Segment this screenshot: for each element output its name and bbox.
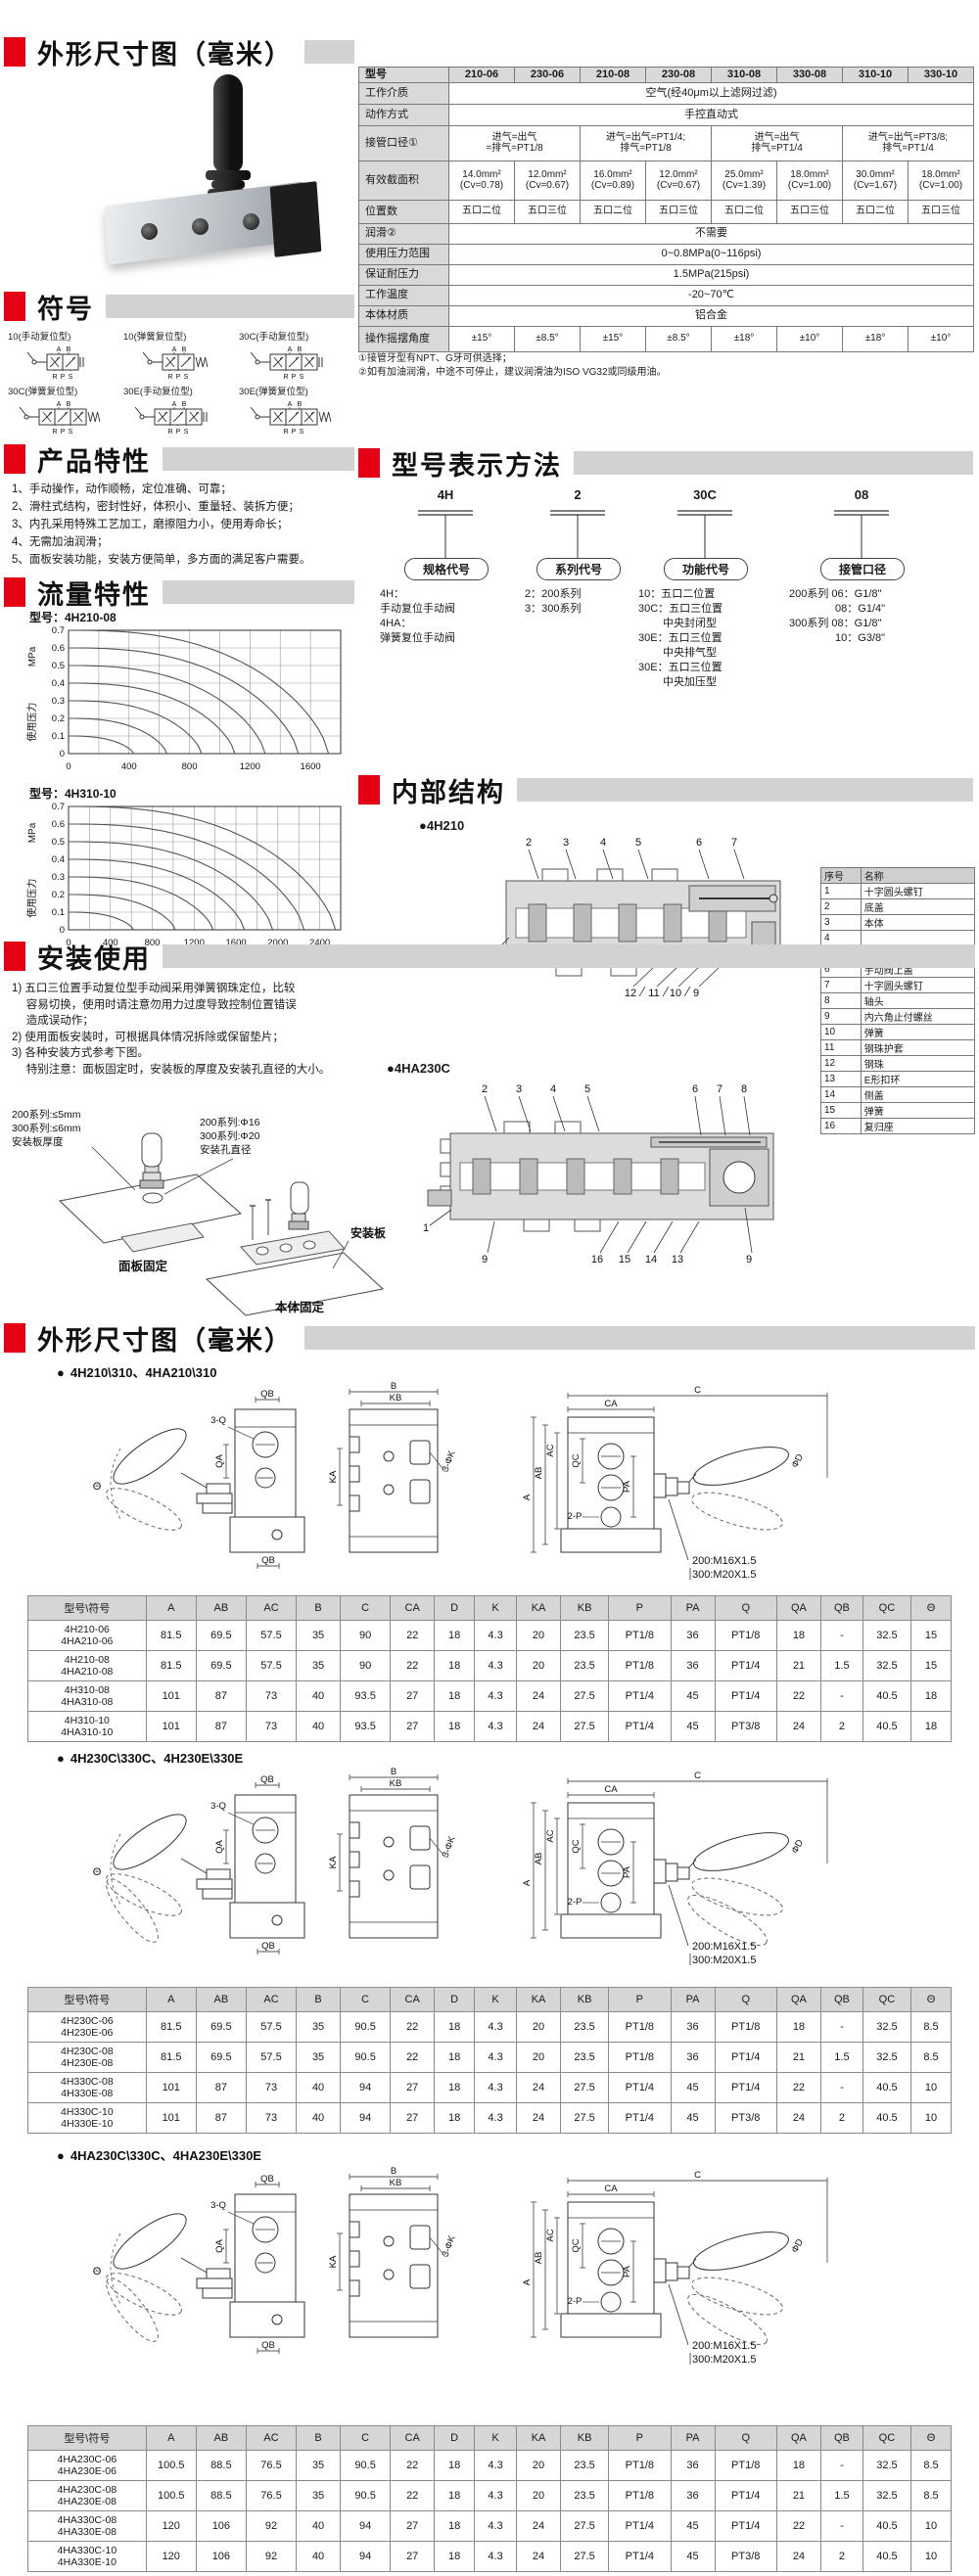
spec-value-cell: 手控直动式 bbox=[449, 104, 974, 125]
svg-text:P: P bbox=[292, 429, 297, 436]
dim-value-cell: 94 bbox=[341, 2073, 391, 2103]
svg-text:QA: QA bbox=[214, 1453, 225, 1467]
dim-value-cell: 81.5 bbox=[146, 2012, 196, 2043]
section-title-features: 产品特性 bbox=[37, 440, 151, 479]
dim-value-cell: 27 bbox=[391, 1681, 435, 1712]
dim-value-cell: 4.3 bbox=[475, 1681, 517, 1712]
dim-value-cell: 4.3 bbox=[475, 2073, 517, 2103]
dim-value-cell: 40.5 bbox=[862, 2511, 910, 2542]
parts-header-cell: 名称 bbox=[861, 868, 974, 884]
dim-value-cell: 20 bbox=[517, 2012, 561, 2043]
dim-value-cell: 94 bbox=[341, 2542, 391, 2572]
dim-value-cell: - bbox=[820, 1681, 862, 1712]
dim-value-cell: 18 bbox=[435, 1681, 475, 1712]
dim-value-cell: 18 bbox=[910, 1681, 951, 1712]
svg-text:7: 7 bbox=[731, 837, 737, 849]
dim-value-cell: 45 bbox=[671, 1712, 715, 1742]
dim-value-cell: 36 bbox=[671, 2012, 715, 2043]
dim-header-cell: QB bbox=[820, 1596, 862, 1621]
dim-value-cell: 18 bbox=[435, 2481, 475, 2511]
dim-value-cell: 4.3 bbox=[475, 2043, 517, 2073]
section-title-outline-bottom: 外形尺寸图（毫米） bbox=[37, 1319, 293, 1357]
dim-value-cell: 24 bbox=[776, 1712, 820, 1742]
section-header-internal: 内部结构 bbox=[358, 773, 973, 806]
model-code-options: 2：200系列 3：300系列 bbox=[525, 587, 581, 617]
svg-text:CA: CA bbox=[604, 1784, 618, 1795]
svg-text:B: B bbox=[391, 2166, 396, 2177]
svg-text:ΦD: ΦD bbox=[790, 1838, 807, 1856]
cross-section-4h210: 23456711211109 bbox=[482, 832, 819, 1000]
dimension-table: 型号\符号AABACBCCADKKAKBPPAQQAQBQCΘ4HA230C-0… bbox=[27, 2425, 952, 2572]
svg-text:3: 3 bbox=[516, 1083, 522, 1095]
dim-header-cell: 型号\符号 bbox=[28, 1596, 147, 1621]
svg-text:A: A bbox=[57, 346, 62, 353]
dimension-drawing-3: ΘQB3-QQAQBBKBKA3-ΦKAABACQC2-PPACCAΦD200:… bbox=[34, 2165, 940, 2370]
spec-value-cell: 五口三位 bbox=[909, 200, 974, 223]
dim-value-cell: 10 bbox=[910, 2103, 951, 2134]
svg-text:400: 400 bbox=[121, 761, 137, 772]
dim-value-cell: 27.5 bbox=[561, 2511, 609, 2542]
dim-value-cell: PT1/4 bbox=[715, 2043, 776, 2073]
spec-value-cell: 五口二位 bbox=[712, 200, 777, 223]
dim-value-cell: 120 bbox=[146, 2542, 196, 2572]
section-marker bbox=[4, 942, 25, 971]
model-code-options: 4H： 手动复位手动阀 4HA： 弹簧复位手动阀 bbox=[380, 587, 455, 646]
spec-row-label: 接管口径① bbox=[359, 125, 449, 161]
dim-value-cell: 93.5 bbox=[341, 1681, 391, 1712]
spec-row-label: 工作介质 bbox=[359, 82, 449, 104]
svg-text:300:M20X1.5: 300:M20X1.5 bbox=[692, 1955, 756, 1966]
spec-row: 有效截面积14.0mm²(Cv=0.78)12.0mm²(Cv=0.67)16.… bbox=[359, 161, 974, 200]
svg-text:PA: PA bbox=[622, 2265, 632, 2277]
dim-header-cell: CA bbox=[391, 1596, 435, 1621]
dim-value-cell: 4.3 bbox=[475, 1712, 517, 1742]
svg-text:2-P: 2-P bbox=[568, 2296, 583, 2307]
dim-value-cell: 35 bbox=[297, 2481, 341, 2511]
svg-text:0.7: 0.7 bbox=[52, 625, 65, 636]
dim-value-cell: 18 bbox=[435, 1651, 475, 1681]
svg-text:4: 4 bbox=[550, 1083, 556, 1095]
dim-value-cell: 2 bbox=[820, 2542, 862, 2572]
dim-value-cell: 81.5 bbox=[146, 1621, 196, 1651]
dim-value-cell: - bbox=[820, 2012, 862, 2043]
dim-header-cell: QC bbox=[862, 1988, 910, 2012]
dim-value-cell: 18 bbox=[435, 2103, 475, 2134]
flow-curve bbox=[69, 666, 265, 754]
symbol-label: 30E(手动复位型) bbox=[123, 384, 239, 397]
spec-model-cell: 330-10 bbox=[909, 68, 974, 83]
dim-value-cell: 69.5 bbox=[196, 1621, 246, 1651]
flow-curve bbox=[69, 912, 133, 930]
svg-text:0.5: 0.5 bbox=[52, 837, 65, 848]
parts-header-row: 序号名称 bbox=[821, 868, 975, 884]
spec-value-cell: 五口三位 bbox=[646, 200, 712, 223]
dim-header-cell: P bbox=[609, 1596, 671, 1621]
dim-value-cell: 8.5 bbox=[910, 2481, 951, 2511]
dim-value-cell: 22 bbox=[391, 2481, 435, 2511]
dimension-table: 型号\符号AABACBCCADKKAKBPPAQQAQBQCΘ4H210-064… bbox=[27, 1595, 952, 1742]
spec-row-label: 有效截面积 bbox=[359, 161, 449, 200]
dim-header-cell: AC bbox=[246, 1596, 296, 1621]
flow-curve bbox=[69, 877, 213, 930]
dim-value-cell: 20 bbox=[517, 2451, 561, 2481]
spec-row-label: 操作摇摆角度 bbox=[359, 326, 449, 351]
svg-text:0.4: 0.4 bbox=[52, 854, 65, 865]
dim-value-cell: 35 bbox=[297, 1621, 341, 1651]
svg-text:Θ: Θ bbox=[93, 2266, 102, 2277]
parts-row: 3本体 bbox=[821, 915, 975, 931]
dim-header-cell: QB bbox=[820, 2426, 862, 2451]
dim-value-cell: 22 bbox=[391, 2012, 435, 2043]
model-code-segment: 2 bbox=[548, 487, 607, 502]
feature-item: 1、手动操作，动作顺畅，定位准确、可靠； bbox=[12, 482, 352, 497]
dim-value-cell: 87 bbox=[196, 1712, 246, 1742]
svg-text:0.4: 0.4 bbox=[52, 678, 65, 689]
dim-value-cell: 94 bbox=[341, 2511, 391, 2542]
svg-text:CA: CA bbox=[604, 2184, 618, 2194]
part-no-cell: 2 bbox=[821, 899, 862, 915]
dim-header-cell: C bbox=[341, 1988, 391, 2012]
valve-symbol-icon: ABRPS bbox=[239, 344, 349, 381]
svg-text:A: A bbox=[172, 346, 177, 353]
svg-text:CA: CA bbox=[604, 1399, 618, 1409]
dim-value-cell: 8.5 bbox=[910, 2451, 951, 2481]
subsection1-label: 4H210\310、4HA210\310 bbox=[70, 1365, 217, 1380]
svg-text:C: C bbox=[694, 2170, 701, 2181]
dim-value-cell: 18 bbox=[435, 2511, 475, 2542]
spec-row: 工作介质空气(经40μm以上滤网过滤) bbox=[359, 82, 974, 104]
svg-text:300:M20X1.5: 300:M20X1.5 bbox=[692, 2354, 756, 2366]
svg-text:S: S bbox=[69, 429, 73, 436]
dim-value-cell: 32.5 bbox=[862, 1651, 910, 1681]
dim-header-cell: AB bbox=[196, 1596, 246, 1621]
spec-row: 工作温度-20~70℃ bbox=[359, 285, 974, 305]
part-name-cell: 侧盖 bbox=[861, 1087, 974, 1103]
dim-header-cell: PA bbox=[671, 2426, 715, 2451]
dim-value-cell: 40 bbox=[297, 2542, 341, 2572]
bullet-icon: ● bbox=[57, 1751, 65, 1766]
section-title-bar bbox=[163, 944, 975, 968]
svg-text:A: A bbox=[288, 346, 293, 353]
dim-value-cell: 18 bbox=[435, 1621, 475, 1651]
dim-value-cell: 36 bbox=[671, 2481, 715, 2511]
flow-chart-4h310-10: 0400800120016002000240000.10.20.30.40.50… bbox=[23, 801, 350, 958]
model-code-options: 200系列 06：G1/8" 08：G1/4" 300系列 08：G1/8" 1… bbox=[789, 587, 885, 646]
dim-header-cell: A bbox=[146, 2426, 196, 2451]
svg-text:S: S bbox=[184, 429, 189, 436]
dim-value-cell: 90.5 bbox=[341, 2043, 391, 2073]
dim-header-cell: AC bbox=[246, 2426, 296, 2451]
dim-value-cell: 18 bbox=[776, 2451, 820, 2481]
dim-value-cell: 27 bbox=[391, 2511, 435, 2542]
svg-text:B: B bbox=[391, 1381, 396, 1392]
model-code-segment: 4H bbox=[416, 487, 475, 502]
svg-text:A: A bbox=[522, 1494, 533, 1500]
spec-value-cell: 18.0mm²(Cv=1.00) bbox=[777, 161, 843, 200]
svg-text:B: B bbox=[298, 401, 303, 408]
svg-text:200系列:Φ16: 200系列:Φ16 bbox=[200, 1116, 260, 1128]
mounting-diagram: 200系列:≤5mm300系列:≤6mm安装板厚度200系列:Φ16300系列:… bbox=[6, 1088, 386, 1319]
svg-text:3-ΦK: 3-ΦK bbox=[441, 2233, 458, 2258]
dim-value-cell: 45 bbox=[671, 1681, 715, 1712]
dim-value-cell: 73 bbox=[246, 1712, 296, 1742]
flow-curve bbox=[69, 842, 273, 930]
svg-text:AB: AB bbox=[534, 1853, 544, 1865]
valve-symbol-icon: ABRPS bbox=[123, 344, 233, 381]
dim-header-cell: K bbox=[475, 1988, 517, 2012]
dim-value-cell: 15 bbox=[910, 1621, 951, 1651]
parts-row: 14侧盖 bbox=[821, 1087, 975, 1103]
dim-row: 4H330C-084H330E-081018773409427184.32427… bbox=[28, 2073, 952, 2103]
dim-value-cell: 4.3 bbox=[475, 2542, 517, 2572]
valve-symbol-icon: ABRPS bbox=[239, 398, 349, 436]
dimension-table-3: 型号\符号AABACBCCADKKAKBPPAQQAQBQCΘ4HA230C-0… bbox=[27, 2425, 952, 2572]
svg-text:11: 11 bbox=[648, 988, 659, 999]
dim-value-cell: 106 bbox=[196, 2542, 246, 2572]
dim-value-cell: 45 bbox=[671, 2542, 715, 2572]
dim-value-cell: 8.5 bbox=[910, 2012, 951, 2043]
parts-row: 9内六角止付螺丝 bbox=[821, 1009, 975, 1025]
part-name-cell: 内六角止付螺丝 bbox=[861, 1009, 974, 1025]
internal-diagram1-label: ●4H210 bbox=[419, 818, 464, 833]
svg-text:Θ: Θ bbox=[93, 1866, 102, 1878]
svg-text:QC: QC bbox=[571, 1453, 582, 1467]
spec-model-cell: 310-10 bbox=[843, 68, 909, 83]
svg-text:200:M16X1.5: 200:M16X1.5 bbox=[692, 1941, 756, 1953]
svg-text:Θ: Θ bbox=[93, 1481, 102, 1493]
svg-text:KB: KB bbox=[390, 1778, 402, 1789]
dim-model-cell: 4H230C-064H230E-06 bbox=[28, 2012, 147, 2043]
part-name-cell: 十字圆头螺钉 bbox=[861, 978, 974, 993]
svg-text:3-Q: 3-Q bbox=[210, 2200, 226, 2211]
dim-value-cell: 81.5 bbox=[146, 1651, 196, 1681]
spec-row-label: 使用压力范围 bbox=[359, 244, 449, 264]
handle-ring bbox=[206, 170, 251, 180]
spec-value-cell: ±15° bbox=[581, 326, 646, 351]
svg-text:2: 2 bbox=[526, 837, 532, 849]
dim-header-cell: B bbox=[297, 2426, 341, 2451]
model-code-bubble: 功能代号 bbox=[664, 558, 748, 580]
parts-row: 8轴头 bbox=[821, 993, 975, 1009]
spec-value-cell: 不需要 bbox=[449, 223, 974, 244]
dim-header-cell: B bbox=[297, 1988, 341, 2012]
dim-value-cell: - bbox=[820, 2073, 862, 2103]
flow-curve bbox=[69, 736, 133, 754]
svg-text:R: R bbox=[167, 374, 172, 381]
part-no-cell: 7 bbox=[821, 978, 862, 993]
flow-curve bbox=[69, 701, 202, 754]
dim-header-cell: AC bbox=[246, 1988, 296, 2012]
svg-text:R: R bbox=[283, 429, 288, 436]
section-header-model-code: 型号表示方法 bbox=[358, 446, 973, 480]
dim-value-cell: 73 bbox=[246, 1681, 296, 1712]
dim-header-cell: Q bbox=[715, 2426, 776, 2451]
section-header-install: 安装使用 bbox=[4, 940, 975, 973]
svg-text:B: B bbox=[391, 1767, 396, 1777]
dim-value-cell: 81.5 bbox=[146, 2043, 196, 2073]
dim-row: 4HA230C-064HA230E-06100.588.576.53590.52… bbox=[28, 2451, 952, 2481]
part-no-cell: 1 bbox=[821, 884, 862, 899]
spec-value-cell: 进气=出气排气=PT1/4 bbox=[712, 125, 843, 161]
dim-header-cell: KB bbox=[561, 2426, 609, 2451]
symbols-grid: 10(手动复位型)ABRPS10(弹簧复位型)ABRPS30C(手动复位型)AB… bbox=[8, 329, 354, 438]
dim-value-cell: 27.5 bbox=[561, 1681, 609, 1712]
svg-text:3: 3 bbox=[563, 837, 569, 849]
dimension-table: 型号\符号AABACBCCADKKAKBPPAQQAQBQCΘ4H230C-06… bbox=[27, 1987, 952, 2134]
svg-text:0: 0 bbox=[60, 925, 65, 936]
dim-value-cell: PT1/4 bbox=[609, 2511, 671, 2542]
spec-model-cell: 210-08 bbox=[581, 68, 646, 83]
dim-value-cell: 93.5 bbox=[341, 1712, 391, 1742]
spec-value-cell: 五口二位 bbox=[843, 200, 909, 223]
spec-value-cell: ±8.5° bbox=[515, 326, 581, 351]
chart1-title: 型号：4H210-08 bbox=[29, 609, 117, 625]
dim-header-cell: CA bbox=[391, 1988, 435, 2012]
svg-text:S: S bbox=[184, 374, 189, 381]
spec-row: 接管口径①进气=出气=排气=PT1/8进气=出气=PT1/4;排气=PT1/8进… bbox=[359, 125, 974, 161]
dim-value-cell: PT1/8 bbox=[609, 1621, 671, 1651]
spec-value-cell: 进气=出气=PT3/8;排气=PT1/4 bbox=[843, 125, 974, 161]
dim-value-cell: PT1/8 bbox=[715, 1621, 776, 1651]
model-code-diagram: 4H规格代号4H： 手动复位手动阀 4HA： 弹簧复位手动阀2系列代号2：200… bbox=[358, 487, 973, 732]
dim-value-cell: 57.5 bbox=[246, 1651, 296, 1681]
dim-value-cell: 4.3 bbox=[475, 2012, 517, 2043]
dim-value-cell: 45 bbox=[671, 2103, 715, 2134]
svg-text:AB: AB bbox=[534, 2252, 544, 2265]
install-diagram: 200系列:≤5mm300系列:≤6mm安装板厚度200系列:Φ16300系列:… bbox=[6, 1088, 386, 1324]
dim-value-cell: 24 bbox=[517, 2511, 561, 2542]
svg-text:A: A bbox=[522, 1879, 533, 1886]
dim-header-row: 型号\符号AABACBCCADKKAKBPPAQQAQBQCΘ bbox=[28, 1596, 952, 1621]
svg-text:QB: QB bbox=[260, 1389, 274, 1400]
dim-value-cell: 22 bbox=[776, 2511, 820, 2542]
dim-header-cell: 型号\符号 bbox=[28, 2426, 147, 2451]
spec-value-cell: 1.5MPa(215psi) bbox=[449, 264, 974, 285]
symbol-item: 10(手动复位型)ABRPS bbox=[8, 329, 123, 384]
dim-value-cell: PT1/8 bbox=[715, 2451, 776, 2481]
spec-value-cell: 铝合金 bbox=[449, 305, 974, 326]
dim-header-cell: KA bbox=[517, 2426, 561, 2451]
spec-row-label: 位置数 bbox=[359, 200, 449, 223]
part-no-cell: 8 bbox=[821, 993, 862, 1009]
dim-value-cell: PT1/8 bbox=[609, 2043, 671, 2073]
svg-text:2-P: 2-P bbox=[568, 1897, 583, 1908]
svg-text:7: 7 bbox=[717, 1083, 723, 1095]
dim-value-cell: 22 bbox=[391, 2451, 435, 2481]
svg-text:200系列:≤5mm: 200系列:≤5mm bbox=[12, 1108, 81, 1121]
dim-value-cell: 4.3 bbox=[475, 2451, 517, 2481]
dim-value-cell: 69.5 bbox=[196, 2012, 246, 2043]
valve-port bbox=[141, 223, 158, 240]
part-name-cell: 弹簧 bbox=[861, 1103, 974, 1119]
dim-value-cell: 2 bbox=[820, 2103, 862, 2134]
parts-header-cell: 序号 bbox=[821, 868, 862, 884]
spec-row: 位置数五口二位五口三位五口二位五口三位五口二位五口三位五口二位五口三位 bbox=[359, 200, 974, 223]
svg-text:S: S bbox=[300, 429, 304, 436]
dim-value-cell: 45 bbox=[671, 2511, 715, 2542]
dim-model-cell: 4H330C-084H330E-08 bbox=[28, 2073, 147, 2103]
dim-value-cell: 69.5 bbox=[196, 2043, 246, 2073]
section-title-bar bbox=[163, 447, 354, 471]
svg-text:A: A bbox=[172, 401, 177, 408]
parts-row: 13E形扣环 bbox=[821, 1072, 975, 1087]
svg-text:8: 8 bbox=[741, 1083, 747, 1095]
dim-value-cell: 20 bbox=[517, 1621, 561, 1651]
svg-text:AC: AC bbox=[545, 1444, 556, 1456]
dim-value-cell: - bbox=[820, 2451, 862, 2481]
dim-value-cell: 21 bbox=[776, 2043, 820, 2073]
dim-header-cell: QC bbox=[862, 2426, 910, 2451]
svg-text:KA: KA bbox=[328, 1470, 339, 1483]
section-title-bar bbox=[304, 40, 354, 64]
dim-value-cell: 87 bbox=[196, 2103, 246, 2134]
dim-value-cell: 76.5 bbox=[246, 2481, 296, 2511]
spec-model-cell: 310-08 bbox=[712, 68, 777, 83]
svg-text:0.6: 0.6 bbox=[52, 643, 65, 654]
dim-row: 4H330C-104H330E-101018773409427184.32427… bbox=[28, 2103, 952, 2134]
dim-value-cell: PT1/4 bbox=[609, 2542, 671, 2572]
svg-text:MPa: MPa bbox=[27, 822, 38, 843]
svg-text:9: 9 bbox=[482, 1254, 488, 1265]
dim-header-cell: K bbox=[475, 2426, 517, 2451]
svg-text:B: B bbox=[67, 346, 71, 353]
spec-footnote: ①接管牙型有NPT、G牙可供选择； bbox=[358, 352, 973, 366]
dim-model-cell: 4HA230C-064HA230E-06 bbox=[28, 2451, 147, 2481]
dim-value-cell: 10 bbox=[910, 2542, 951, 2572]
spec-row: 保证耐压力1.5MPa(215psi) bbox=[359, 264, 974, 285]
svg-text:A: A bbox=[57, 401, 62, 408]
dim-value-cell: 120 bbox=[146, 2511, 196, 2542]
dim-header-cell: C bbox=[341, 1596, 391, 1621]
svg-text:QA: QA bbox=[214, 2238, 225, 2252]
dim-model-cell: 4H210-084HA210-08 bbox=[28, 1651, 147, 1681]
section-marker bbox=[4, 444, 25, 474]
dim-row: 4H310-084HA310-0810187734093.527184.3242… bbox=[28, 1681, 952, 1712]
dimension-table-2: 型号\符号AABACBCCADKKAKBPPAQQAQBQCΘ4H230C-06… bbox=[27, 1987, 952, 2134]
spec-value-cell: 0~0.8MPa(0~116psi) bbox=[449, 244, 974, 264]
dim-value-cell: 35 bbox=[297, 1651, 341, 1681]
svg-text:0: 0 bbox=[60, 749, 65, 759]
section-marker bbox=[4, 1323, 25, 1353]
spec-row: 润滑②不需要 bbox=[359, 223, 974, 244]
symbol-label: 30C(弹簧复位型) bbox=[8, 384, 123, 397]
svg-text:9: 9 bbox=[693, 988, 699, 999]
dim-header-cell: 型号\符号 bbox=[28, 1988, 147, 2012]
spec-value-cell: 14.0mm²(Cv=0.78) bbox=[449, 161, 515, 200]
dim-value-cell: 101 bbox=[146, 2103, 196, 2134]
dim-value-cell: 8.5 bbox=[910, 2043, 951, 2073]
spec-value-cell: 进气=出气=排气=PT1/8 bbox=[449, 125, 581, 161]
svg-text:QB: QB bbox=[261, 1555, 275, 1566]
section-title-model-code: 型号表示方法 bbox=[392, 444, 562, 483]
svg-text:MPa: MPa bbox=[27, 646, 38, 667]
dim-value-cell: 27 bbox=[391, 2103, 435, 2134]
spec-model-cell: 210-06 bbox=[449, 68, 515, 83]
dim-value-cell: 32.5 bbox=[862, 2481, 910, 2511]
parts-row: 16复归座 bbox=[821, 1119, 975, 1134]
dim-value-cell: PT1/4 bbox=[609, 2103, 671, 2134]
dim-value-cell: 18 bbox=[435, 2451, 475, 2481]
svg-text:1200: 1200 bbox=[240, 761, 260, 772]
dim-value-cell: 10 bbox=[910, 2511, 951, 2542]
svg-text:0.3: 0.3 bbox=[52, 696, 65, 707]
svg-text:KB: KB bbox=[390, 2178, 402, 2188]
subsection1-bullet: ●4H210\310、4HA210\310 bbox=[57, 1362, 216, 1381]
svg-text:QC: QC bbox=[571, 2238, 582, 2252]
dim-value-cell: 101 bbox=[146, 2073, 196, 2103]
svg-text:800: 800 bbox=[182, 761, 198, 772]
dim-value-cell: 1.5 bbox=[820, 2481, 862, 2511]
